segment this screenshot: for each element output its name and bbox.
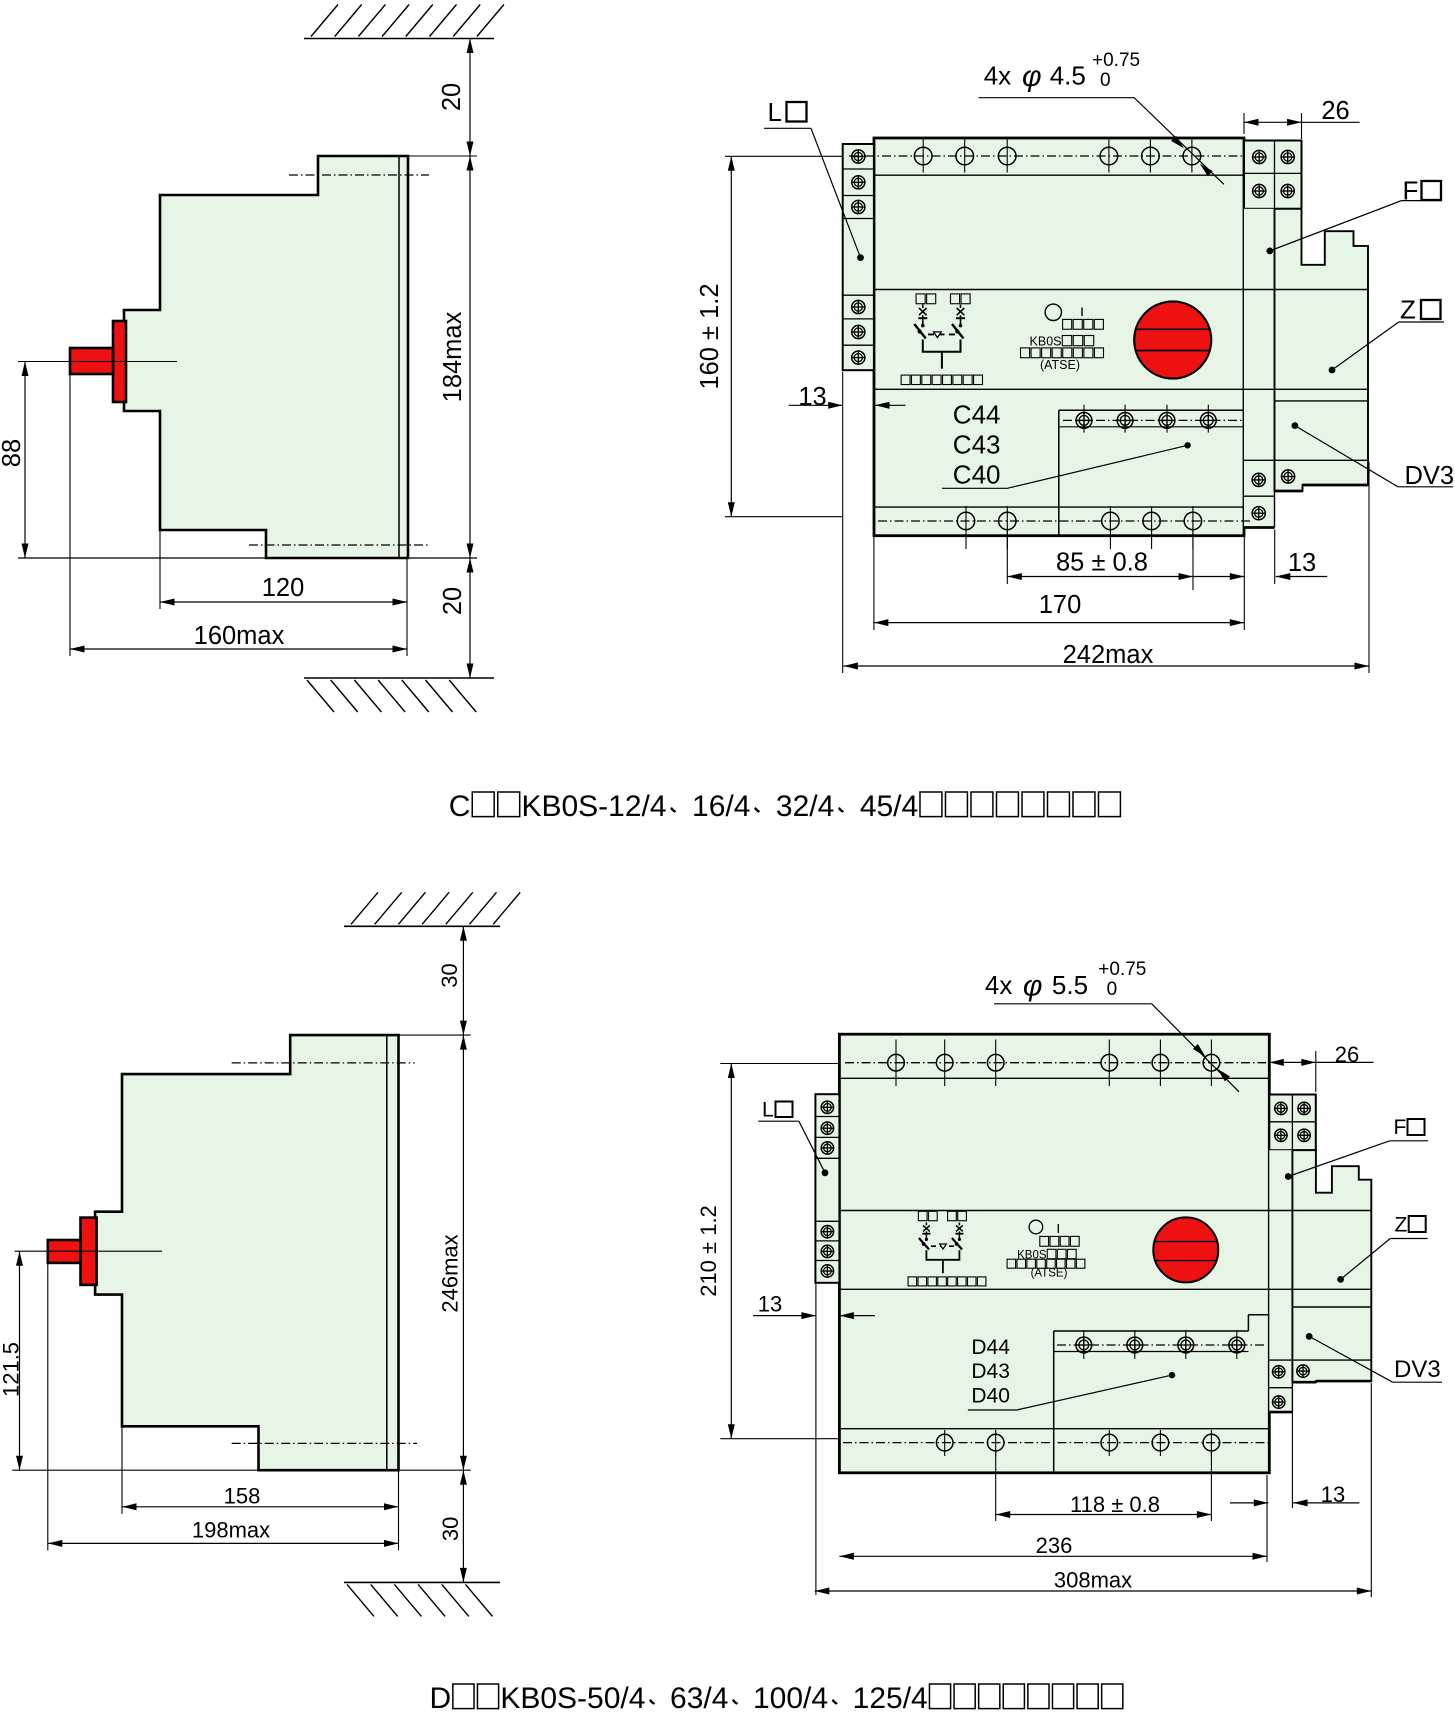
svg-text:C43: C43 (953, 430, 1001, 460)
svg-text:118 ± 0.8: 118 ± 0.8 (1070, 1492, 1160, 1517)
svg-text:236: 236 (1036, 1533, 1073, 1558)
svg-text:D44: D44 (971, 1336, 1010, 1359)
svg-text:φ: φ (1023, 970, 1043, 1003)
svg-text:198max: 198max (192, 1518, 270, 1543)
svg-text:125/4: 125/4 (853, 1682, 928, 1715)
svg-text:4.5: 4.5 (1050, 61, 1086, 91)
svg-text:184max: 184max (439, 311, 467, 402)
svg-text:13: 13 (758, 1292, 782, 1317)
svg-text:0: 0 (1107, 979, 1118, 1000)
svg-text:88: 88 (0, 439, 26, 467)
svg-text:30: 30 (437, 963, 462, 987)
svg-text:C: C (449, 790, 471, 823)
svg-text:170: 170 (1039, 591, 1082, 619)
svg-text:D40: D40 (971, 1385, 1010, 1408)
svg-text:+0.75: +0.75 (1092, 50, 1140, 71)
svg-text:(ATSE): (ATSE) (1040, 358, 1080, 372)
svg-text:Z: Z (1400, 295, 1416, 325)
svg-text:C44: C44 (953, 400, 1001, 430)
svg-text:100/4: 100/4 (753, 1682, 828, 1715)
svg-text:+0.75: +0.75 (1098, 959, 1146, 980)
svg-text:F: F (1394, 1116, 1407, 1139)
svg-text:D: D (429, 1682, 451, 1715)
svg-text:20: 20 (438, 83, 466, 111)
svg-text:246max: 246max (437, 1234, 462, 1312)
svg-text:30: 30 (438, 1517, 463, 1541)
svg-text:32/4: 32/4 (776, 790, 834, 823)
svg-text:13: 13 (1288, 549, 1316, 577)
svg-text:210 ± 1.2: 210 ± 1.2 (696, 1205, 721, 1297)
svg-text:L: L (762, 1099, 774, 1122)
svg-text:242max: 242max (1063, 641, 1154, 669)
svg-text:DV3: DV3 (1405, 462, 1455, 490)
svg-text:16/4: 16/4 (692, 790, 750, 823)
svg-text:C40: C40 (953, 459, 1001, 489)
svg-text:160max: 160max (194, 622, 285, 650)
svg-text:26: 26 (1335, 1042, 1359, 1067)
svg-text:158: 158 (224, 1484, 261, 1509)
svg-text:63/4: 63/4 (670, 1682, 728, 1715)
svg-text:45/4: 45/4 (860, 790, 918, 823)
svg-text:13: 13 (1321, 1482, 1345, 1507)
svg-text:26: 26 (1321, 97, 1349, 125)
svg-text:5.5: 5.5 (1052, 970, 1088, 1000)
svg-text:4x: 4x (984, 61, 1011, 91)
svg-text:φ: φ (1022, 60, 1042, 93)
svg-text:Z: Z (1395, 1214, 1408, 1237)
svg-text:D43: D43 (971, 1360, 1010, 1383)
svg-text:KB0S-12/4: KB0S-12/4 (521, 790, 666, 823)
svg-text:160 ± 1.2: 160 ± 1.2 (696, 283, 724, 389)
svg-text:KB0S: KB0S (1030, 335, 1062, 349)
svg-text:121.5: 121.5 (0, 1342, 23, 1397)
svg-text:20: 20 (439, 587, 467, 615)
svg-text:KB0S-50/4: KB0S-50/4 (500, 1682, 645, 1715)
svg-text:308max: 308max (1054, 1568, 1132, 1593)
svg-text:DV3: DV3 (1394, 1356, 1441, 1383)
svg-text:85 ± 0.8: 85 ± 0.8 (1056, 549, 1148, 577)
svg-text:L: L (768, 97, 782, 127)
svg-text:4x: 4x (985, 970, 1012, 1000)
svg-text:0: 0 (1100, 70, 1111, 91)
svg-text:(ATSE): (ATSE) (1031, 1268, 1068, 1280)
svg-text:13: 13 (798, 383, 826, 411)
svg-text:120: 120 (262, 574, 305, 602)
